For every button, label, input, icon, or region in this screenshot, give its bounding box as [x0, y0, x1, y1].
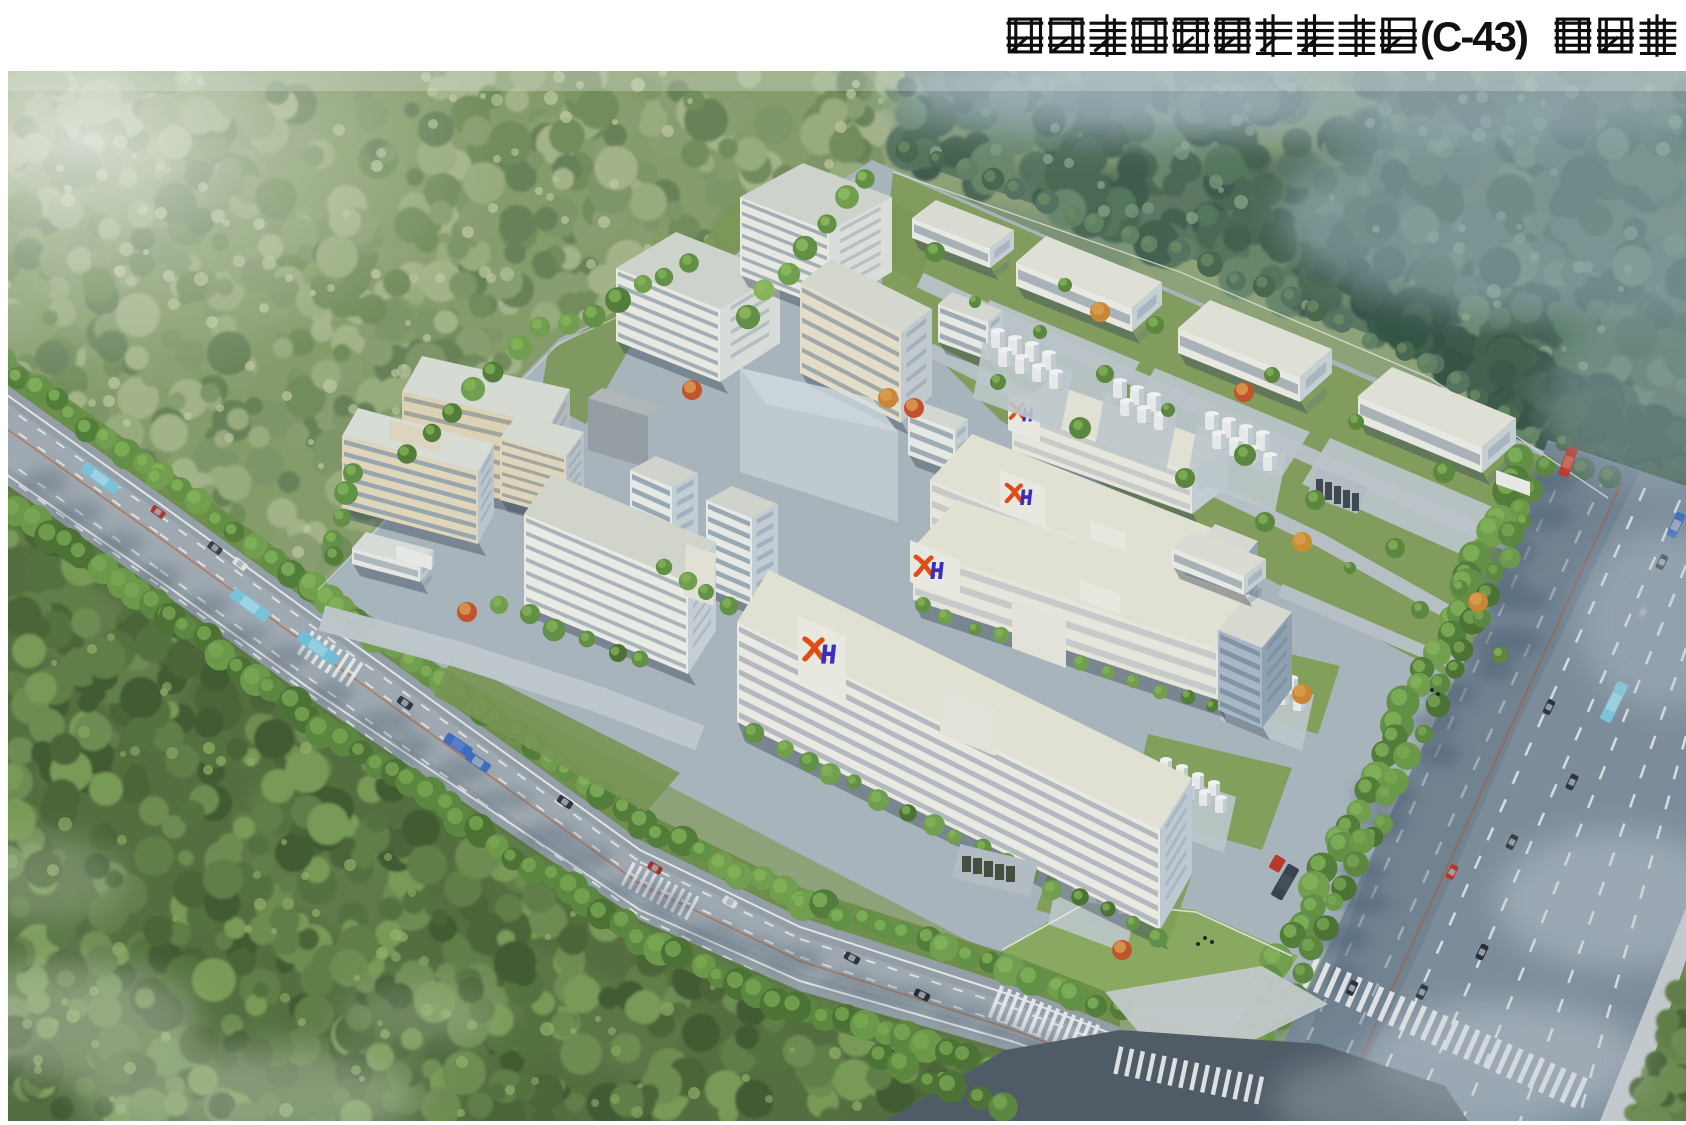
svg-text:(C-43): (C-43) [1420, 13, 1527, 60]
